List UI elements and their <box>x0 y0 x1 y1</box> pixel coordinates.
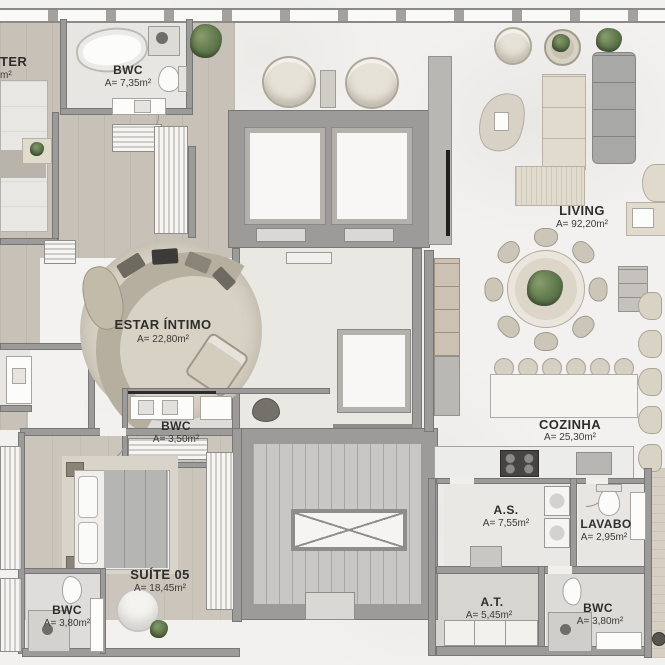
shower <box>200 396 232 420</box>
terrace-fixture <box>652 632 665 646</box>
wardrobe <box>0 578 22 652</box>
shower-drain <box>560 624 571 635</box>
sink <box>134 100 151 113</box>
wall <box>424 250 434 432</box>
wall <box>570 478 577 570</box>
sink <box>162 400 178 415</box>
kitchen-sink <box>576 452 612 475</box>
toilet <box>252 398 280 422</box>
kitchen-cabinet <box>434 356 460 416</box>
room-area-master: m² <box>0 70 12 81</box>
dryer <box>544 518 570 548</box>
side-table <box>320 70 336 108</box>
apartment-floor-plan: TER m² BWC A= 7,35m² LIVING A= 92,20m² E… <box>0 0 665 665</box>
stair-void <box>291 509 407 551</box>
vanity <box>596 632 642 650</box>
lounge-chair <box>642 164 665 202</box>
wall <box>188 146 196 238</box>
tray <box>494 112 509 131</box>
swivel-armchair <box>345 57 399 109</box>
bed-blanket <box>104 470 168 568</box>
vanity <box>90 598 104 652</box>
sofa <box>592 52 636 164</box>
door-opening <box>100 428 126 436</box>
wall <box>20 428 238 436</box>
feature-chair <box>638 292 662 320</box>
room-label-bwc-suite: BWC <box>52 604 82 617</box>
room-area-estar-intimo: A= 22,80m² <box>137 334 189 345</box>
stair-entry <box>305 592 355 620</box>
elevator-shaft <box>245 128 325 224</box>
room-label-suite-05: SUÍTE 05 <box>130 568 190 582</box>
armchair <box>494 27 532 65</box>
rattan-bench <box>515 166 585 206</box>
kitchen-island <box>490 374 638 418</box>
plant <box>596 28 622 52</box>
wardrobe <box>154 126 188 234</box>
wardrobe <box>44 240 76 264</box>
lockers <box>444 620 538 646</box>
toilet <box>158 66 180 92</box>
plant <box>150 620 168 638</box>
room-area-at: A= 5,45m² <box>466 610 512 621</box>
dining-chair <box>589 278 608 302</box>
room-area-bwc-service: A= 3,80m² <box>577 616 623 627</box>
room-area-bwc-suite: A= 3,80m² <box>44 618 90 629</box>
room-label-lavabo: LAVABO <box>580 518 631 531</box>
pantry-cabinet <box>434 258 460 356</box>
feature-chair <box>638 406 662 434</box>
room-label-cozinha: COZINHA <box>539 418 601 432</box>
room-area-as: A= 7,55m² <box>483 518 529 529</box>
wardrobe <box>0 446 22 570</box>
room-label-as: A.S. <box>494 504 519 517</box>
service-shaft <box>338 330 410 412</box>
room-area-lavabo: A= 2,95m² <box>581 532 627 543</box>
wardrobe <box>206 452 234 610</box>
room-area-living: A= 92,20m² <box>556 219 608 230</box>
door-opening <box>548 566 572 574</box>
counter-edge <box>128 391 216 394</box>
room-label-bwc-intimo: BWC <box>161 420 191 433</box>
room-label-master: TER <box>0 55 27 69</box>
terrace-strip <box>652 468 665 658</box>
room-label-living: LIVING <box>559 204 605 218</box>
facade-window-band <box>0 8 665 23</box>
vanity <box>630 492 646 540</box>
coffee-table <box>542 74 586 170</box>
sink <box>138 400 154 415</box>
elevator-door <box>344 228 394 242</box>
sofa-cushion <box>152 248 179 265</box>
wall <box>428 478 436 656</box>
sink <box>12 368 26 384</box>
room-area-bwc-master: A= 7,35m² <box>105 78 151 89</box>
swivel-armchair <box>262 56 316 108</box>
wall <box>24 568 106 574</box>
laundry-sink <box>470 546 502 568</box>
room-label-estar-intimo: ESTAR ÍNTIMO <box>115 318 212 332</box>
toilet-tank <box>178 66 187 92</box>
wall <box>0 405 32 412</box>
bench-cushion <box>632 208 654 228</box>
door-opening <box>450 478 474 484</box>
shower-drain <box>156 32 168 44</box>
room-label-at: A.T. <box>481 596 504 609</box>
dining-chair <box>534 228 558 247</box>
toilet-tank <box>596 484 622 492</box>
dining-chair <box>534 332 558 351</box>
wall <box>538 566 545 656</box>
room-label-bwc-master: BWC <box>113 64 143 77</box>
elevator-door <box>256 228 306 242</box>
elevator-shaft <box>332 128 412 224</box>
tv-icon <box>446 150 450 236</box>
dining-chair <box>485 278 504 302</box>
stove <box>500 450 539 477</box>
room-label-bwc-service: BWC <box>583 602 613 615</box>
toilet <box>598 488 620 516</box>
wall <box>412 248 422 432</box>
pillow <box>78 476 98 518</box>
feature-chair <box>638 330 662 358</box>
room-area-bwc-intimo: A= 3,50m² <box>153 434 199 445</box>
hall-door-opening <box>286 252 332 264</box>
wall <box>0 343 94 350</box>
feature-chair <box>638 368 662 396</box>
corridor-to-suite-floor <box>28 345 84 435</box>
wall <box>52 112 59 240</box>
wall <box>60 19 67 115</box>
room-area-suite-05: A= 18,45m² <box>134 583 186 594</box>
toilet <box>563 578 582 606</box>
room-area-cozinha: A= 25,30m² <box>544 432 596 443</box>
washer <box>544 486 570 516</box>
pillow <box>78 522 98 564</box>
